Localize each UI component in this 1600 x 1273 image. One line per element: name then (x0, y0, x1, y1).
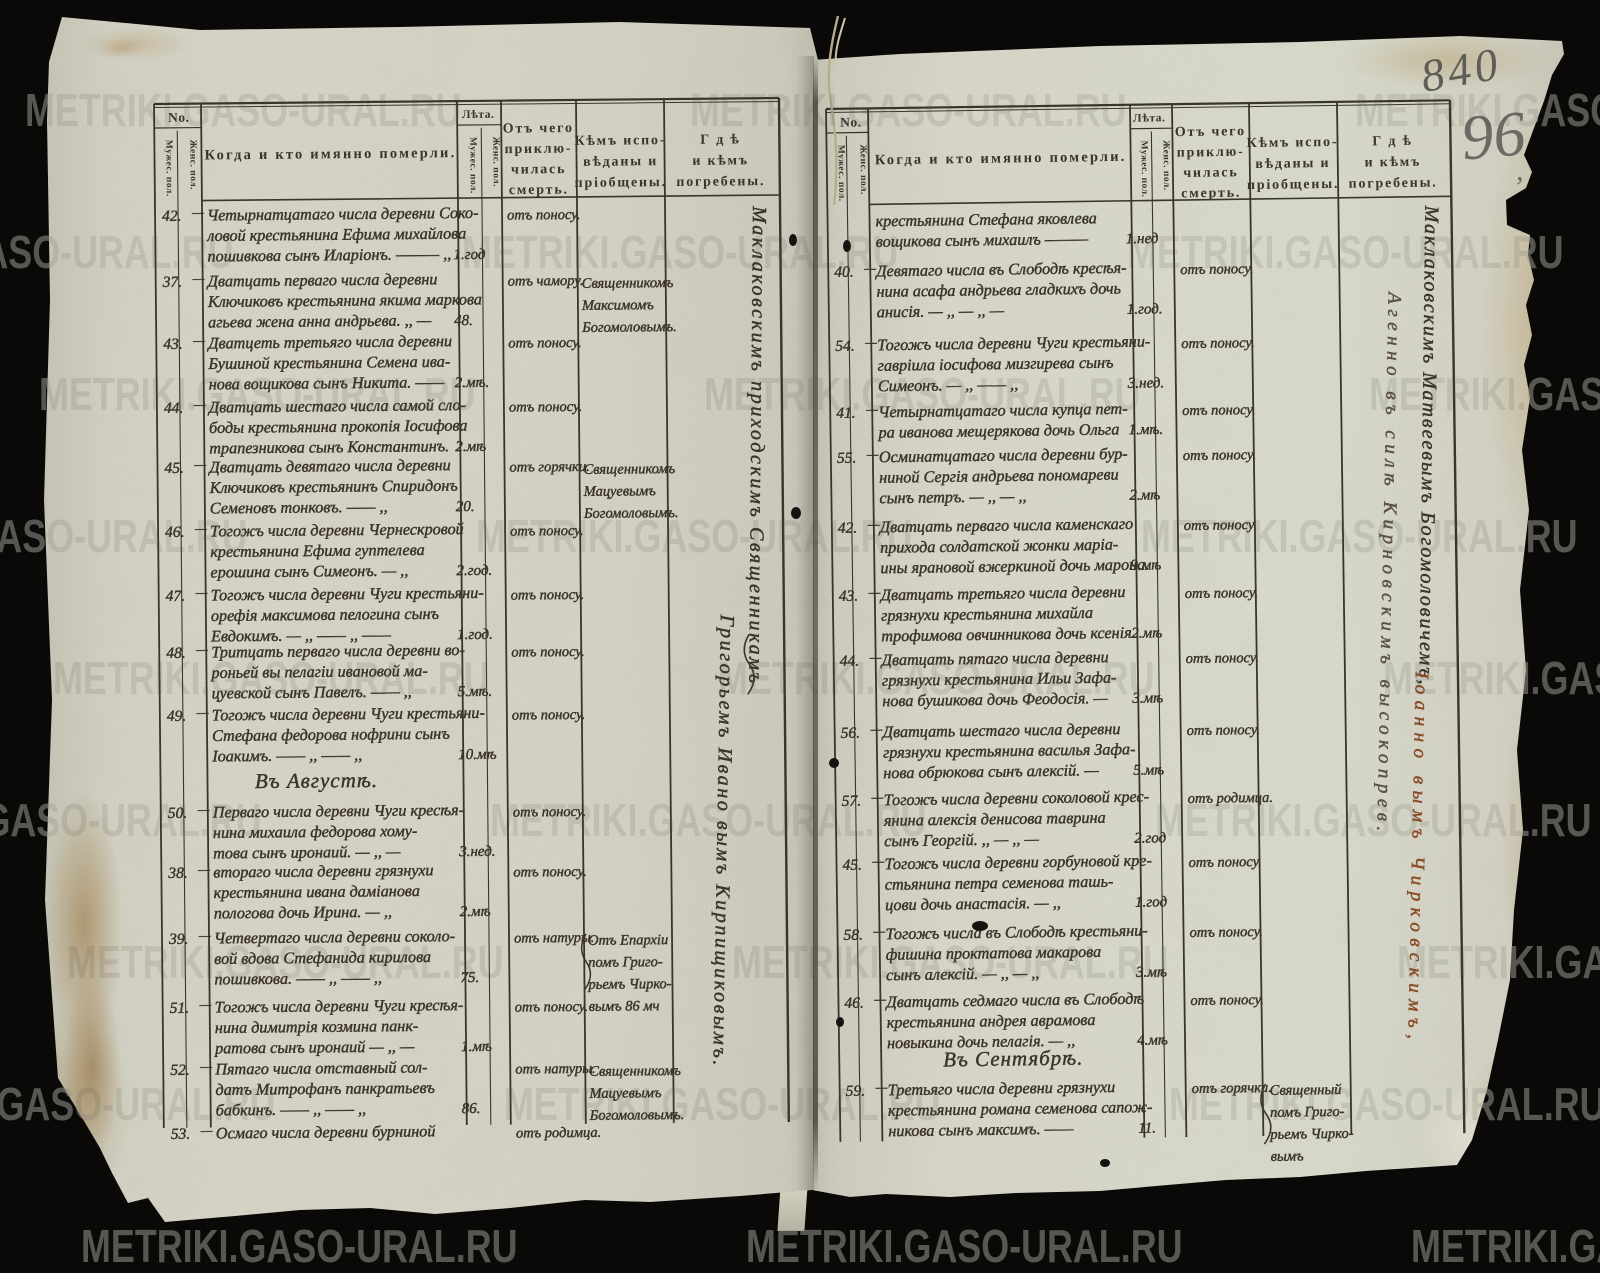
svg-text:,: , (1516, 154, 1524, 187)
